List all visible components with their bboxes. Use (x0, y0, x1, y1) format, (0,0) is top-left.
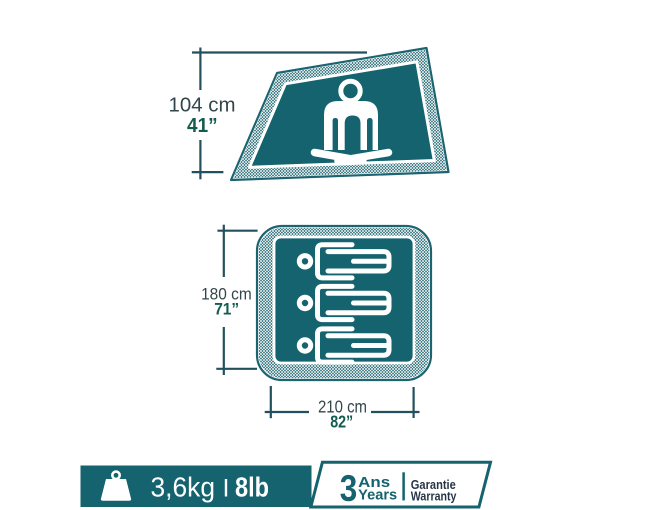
svg-text:82”: 82” (330, 411, 353, 431)
svg-text:Warranty: Warranty (411, 488, 457, 503)
svg-text:3,6kgI8lb: 3,6kgI8lb (151, 472, 270, 503)
svg-text:3: 3 (340, 467, 358, 509)
svg-text:Years: Years (358, 487, 397, 503)
svg-text:71”: 71” (214, 300, 239, 319)
svg-text:104 cm: 104 cm (169, 95, 236, 117)
svg-text:41”: 41” (187, 115, 218, 137)
